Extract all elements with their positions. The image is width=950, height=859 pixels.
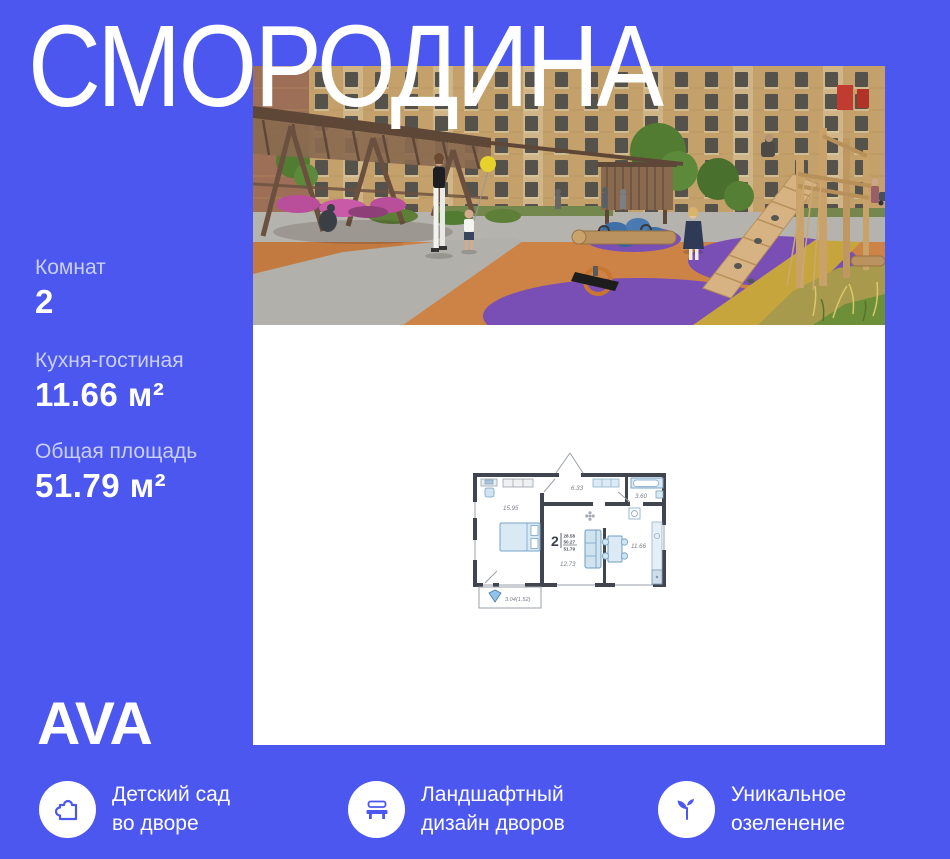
stat-rooms: Комнат 2 [35,256,106,319]
feature-line1: Детский сад [112,780,230,809]
brand-logo: AVA [37,694,152,754]
feature-line1: Ландшафтный [421,780,565,809]
stat-total: Общая площадь 51.79 м² [35,440,197,503]
plan-summary: 2 28.58 50.27 51.79 [551,533,577,552]
feature-line1: Уникальное [731,780,846,809]
feature-text: Детский сад во дворе [112,780,230,838]
stat-kitchen-label: Кухня-гостиная [35,349,184,372]
puzzle-icon [51,792,85,826]
stat-total-label: Общая площадь [35,440,197,463]
promo-banner: СМОРОДИНА [0,0,950,859]
floorplan: 15.95 6.33 3.60 12.73 11.66 3.04(1.52) 2… [455,450,685,620]
stat-kitchen-value: 11.66 м² [35,377,184,412]
door-swings [485,453,630,583]
floorplan-panel: 15.95 6.33 3.60 12.73 11.66 3.04(1.52) 2… [253,325,885,745]
bench-icon [360,792,394,826]
feature-landscape: Ландшафтный дизайн дворов [348,780,565,838]
bedroom-area-label: 15.95 [503,505,519,512]
complex-title: СМОРОДИНА [28,8,661,124]
vent-icon [585,511,595,521]
stat-kitchen: Кухня-гостиная 11.66 м² [35,349,184,412]
feature-text: Уникальное озеленение [731,780,846,838]
feature-circle [348,781,405,838]
stat-rooms-label: Комнат [35,256,106,279]
area-total: 51.79 [564,547,576,552]
balcony-area-label: 3.04(1.52) [505,597,531,603]
stat-rooms-value: 2 [35,284,106,319]
feature-line2: во дворе [112,809,230,838]
feature-circle [658,781,715,838]
area-without-balcony: 50.27 [564,540,576,545]
sprout-icon [670,792,704,826]
area-living-sum: 28.58 [564,534,576,539]
feature-text: Ландшафтный дизайн дворов [421,780,565,838]
feature-greenery: Уникальное озеленение [658,780,846,838]
feature-kindergarten: Детский сад во дворе [39,780,230,838]
feature-line2: озеленение [731,809,846,838]
rooms-count: 2 [551,533,559,549]
stat-total-value: 51.79 м² [35,468,197,503]
bath-area-label: 3.60 [635,493,648,500]
kitchen-area-label: 11.66 [631,543,647,550]
living-area-label: 12.73 [560,561,576,568]
feature-circle [39,781,96,838]
hall-area-label: 6.33 [571,485,584,492]
feature-line2: дизайн дворов [421,809,565,838]
